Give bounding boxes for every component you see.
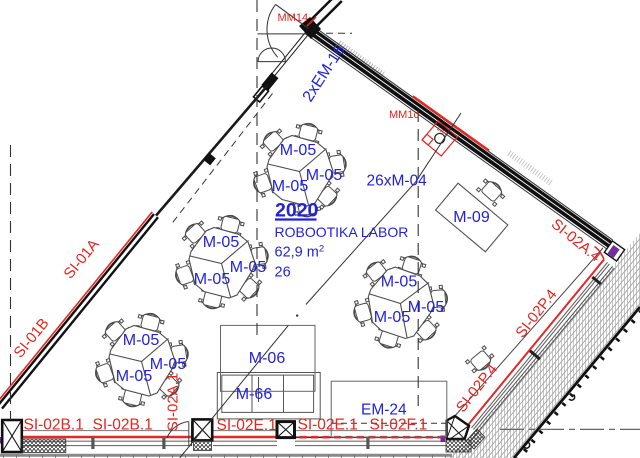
svg-text:M-05: M-05 [272,178,309,195]
svg-text:SI-02F.1: SI-02F.1 [370,417,428,434]
svg-text:M-05: M-05 [203,234,240,251]
svg-text:M-05: M-05 [374,309,411,326]
svg-text:M-05: M-05 [123,332,160,349]
svg-text:2020: 2020 [275,200,319,222]
svg-text:SI-02E.1: SI-02E.1 [217,417,277,434]
svg-text:26xM-04: 26xM-04 [367,173,428,190]
svg-text:SI-02E.1: SI-02E.1 [298,417,358,434]
svg-text:SI-02B.1: SI-02B.1 [93,417,153,434]
svg-text:M-05: M-05 [306,167,343,184]
svg-text:26: 26 [275,264,291,280]
svg-text:M-06: M-06 [249,350,286,367]
svg-text:MM1c: MM1c [389,109,419,121]
svg-text:M-66: M-66 [236,386,273,403]
svg-text:M-09: M-09 [453,209,490,226]
svg-text:SI-02A.1: SI-02A.1 [165,373,182,431]
svg-text:MM14: MM14 [278,12,309,24]
svg-text:ROBOOTIKA LABOR: ROBOOTIKA LABOR [275,224,409,240]
svg-text:M-05: M-05 [408,299,445,316]
svg-text:M-05: M-05 [230,259,267,276]
svg-text:M-05: M-05 [194,271,231,288]
svg-text:M-05: M-05 [280,142,317,159]
svg-text:SI-02B.1: SI-02B.1 [24,417,84,434]
svg-text:M-05: M-05 [116,368,153,385]
svg-text:M-05: M-05 [381,274,418,291]
svg-text:M-05: M-05 [150,356,187,373]
svg-text:62,9 m2: 62,9 m2 [275,244,325,261]
